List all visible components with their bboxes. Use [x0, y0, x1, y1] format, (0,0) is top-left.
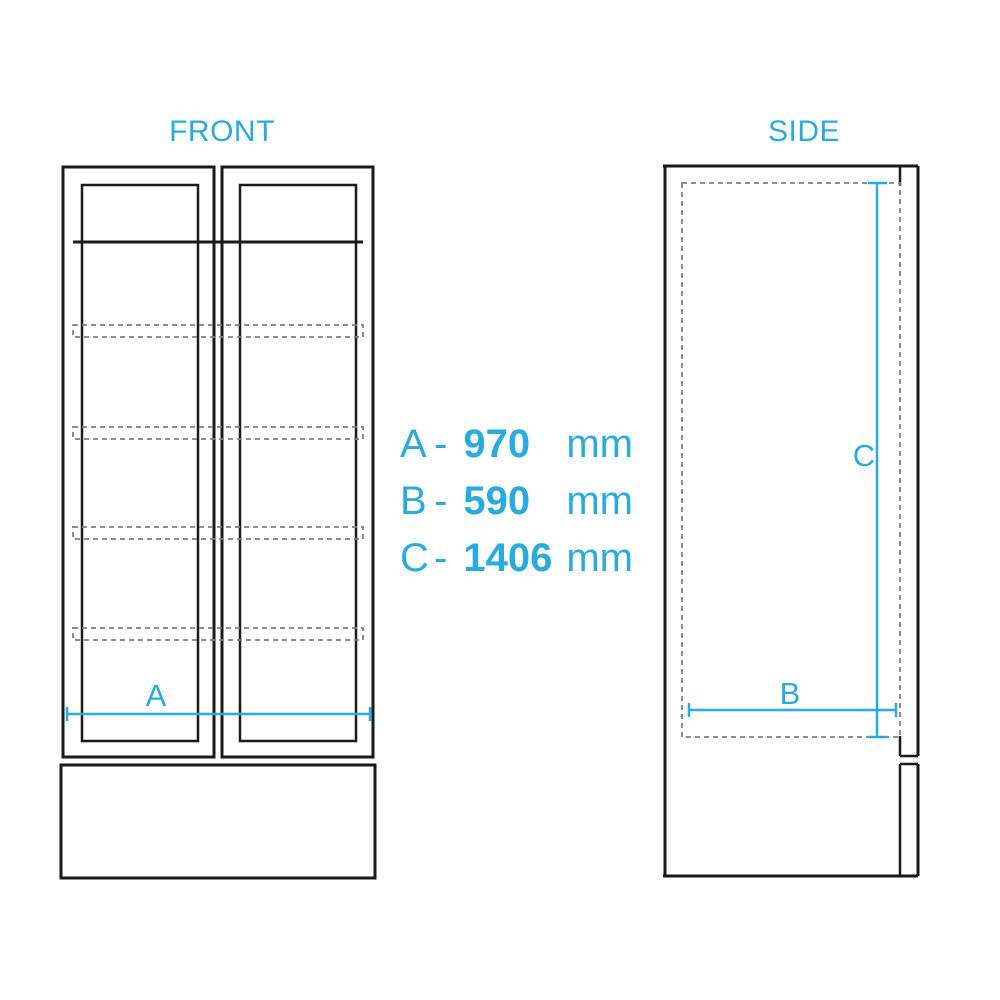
dimension-row-b-unit: mm [566, 479, 633, 523]
front-view-drawing [61, 167, 375, 878]
dimension-row-a-letter: A [400, 422, 434, 466]
front-right-door-outline [222, 167, 373, 757]
front-base-outline [61, 765, 375, 878]
dimension-row-a: A - 970 mm [400, 422, 633, 466]
dimension-row-c-separator: - [434, 536, 447, 580]
front-view-title: FRONT [169, 117, 275, 147]
dimension-row-a-value: 970 [463, 422, 566, 466]
dimension-a-label: A [146, 680, 167, 711]
front-shelf-1-dashed-outline [73, 325, 363, 337]
front-right-door-inner-frame [240, 185, 356, 741]
front-left-door-outline [63, 167, 214, 757]
dimension-list: A - 970 mm B - 590 mm C - 1406 mm [400, 422, 633, 580]
front-shelf-4-dashed-outline [73, 628, 363, 640]
dimension-row-c: C - 1406 mm [400, 536, 633, 580]
dimension-row-b-separator: - [434, 479, 447, 523]
dimension-row-a-unit: mm [566, 422, 633, 466]
dimension-row-b: B - 590 mm [400, 479, 633, 523]
front-shelf-3-dashed-outline [73, 527, 363, 539]
front-left-door-inner-frame [82, 185, 198, 741]
dimension-c-label: C [853, 440, 875, 471]
dimension-row-c-unit: mm [566, 536, 633, 580]
side-view-drawing [663, 165, 918, 877]
dimension-row-a-separator: - [434, 422, 447, 466]
side-view-title: SIDE [768, 117, 840, 147]
front-shelf-2-dashed-outline [73, 427, 363, 439]
dimension-row-c-value: 1406 [463, 536, 566, 580]
dimension-row-c-letter: C [400, 536, 434, 580]
technical-drawing-page: FRONT SIDE A B C A - 970 mm B - 590 mm C… [0, 0, 1000, 1000]
dimension-row-b-letter: B [400, 479, 434, 523]
dimension-b-label: B [780, 678, 801, 709]
dimension-row-b-value: 590 [463, 479, 566, 523]
front-width-dimension-line [67, 707, 370, 721]
